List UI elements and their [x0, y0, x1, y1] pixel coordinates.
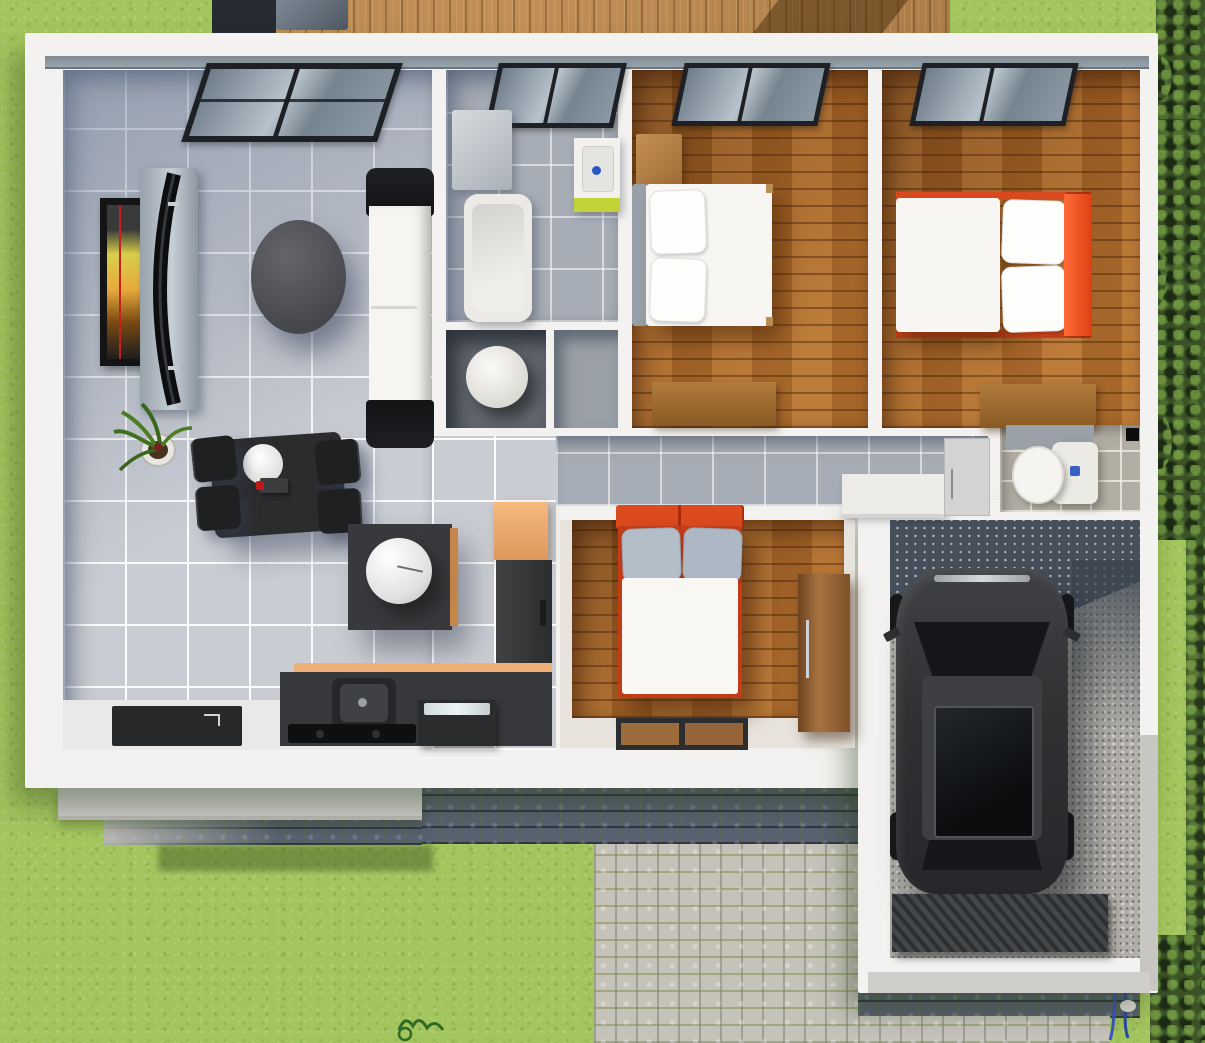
cooktop-burner-2	[372, 730, 380, 738]
bedroom1-nightstand	[636, 134, 682, 190]
picture-art-line	[119, 205, 121, 359]
water-heater-cylinder	[466, 346, 528, 408]
sofa-arm-bottom	[366, 400, 434, 448]
sofa-seat-seam	[371, 306, 417, 309]
deck-furniture-dark	[212, 0, 276, 36]
bedroom3-door-mat	[616, 718, 748, 750]
oven	[418, 700, 496, 746]
kitchen-sink	[332, 678, 396, 728]
oven-glass-top	[424, 703, 490, 715]
grass-sprig	[393, 1010, 457, 1043]
bedroom2-dresser	[980, 384, 1096, 428]
garage-right-wall-face	[1140, 735, 1158, 991]
bathroom-window-mullion	[543, 68, 559, 123]
sink-faucet	[358, 698, 367, 707]
dining-red-item	[256, 481, 264, 490]
pantry-cabinet	[494, 502, 548, 560]
cobble-strip-shadow	[420, 782, 882, 844]
garage-bottom-wall-face	[868, 972, 1150, 993]
bedroom2-headboard-orange	[1064, 192, 1092, 338]
garage-shadow-right	[1072, 560, 1140, 780]
house-shadow-on-grass	[158, 845, 433, 871]
car-rear-window	[922, 840, 1042, 870]
porch-step	[58, 786, 422, 820]
closet-floor	[554, 330, 618, 428]
garage-ramp	[892, 894, 1108, 952]
cooktop	[288, 724, 416, 743]
door-handle-mark	[204, 714, 220, 726]
car-roof	[922, 676, 1042, 840]
hedge-right-bottom	[1186, 540, 1205, 940]
bedroom3-pillow-1	[621, 527, 682, 583]
coffee-table	[251, 220, 346, 334]
hallway-counter	[842, 474, 944, 514]
potted-plant	[106, 398, 200, 484]
lamp-table-wood-edge	[450, 528, 458, 626]
dining-chair-3	[314, 438, 362, 486]
cooktop-burner-1	[316, 730, 324, 738]
bathtub-basin	[472, 204, 524, 312]
entrance-door-mat	[112, 706, 242, 746]
car-sunroof	[934, 706, 1034, 838]
dining-tray	[260, 478, 288, 493]
tv-curved-screen	[126, 166, 202, 412]
fridge	[496, 560, 552, 668]
car	[896, 568, 1068, 894]
bedroom1-footpost-1	[766, 184, 773, 193]
bedroom1-window-mullion	[737, 68, 752, 121]
deck-furniture-steel	[276, 0, 348, 30]
hallway-cabinet	[944, 438, 990, 516]
bedroom2-pillow-2	[1001, 265, 1067, 333]
bathroom-cabinet	[452, 110, 512, 190]
floor-plan-render	[0, 0, 1205, 1043]
bedroom2-window-mullion	[979, 68, 994, 121]
bedroom1-footpost-2	[766, 317, 773, 326]
dining-chair-2	[195, 485, 242, 532]
bedroom3-pillow-2	[682, 527, 743, 583]
bedroom1-dresser	[652, 382, 776, 426]
door-mat-panel-2	[685, 723, 743, 745]
toilet-button-blue	[1070, 466, 1080, 476]
bedroom3-duvet	[622, 578, 738, 694]
cobbles-below-garage	[858, 1016, 1110, 1043]
fridge-handle	[540, 600, 546, 626]
wardrobe-handle	[806, 620, 809, 678]
patio-door	[181, 63, 403, 142]
bedroom1-window	[671, 63, 830, 126]
bedroom2-pillow-1	[1001, 199, 1067, 265]
patio-door-mullion	[273, 69, 300, 136]
bedroom2-window	[909, 63, 1078, 126]
bedroom1-pillow-2	[649, 257, 707, 323]
wall-vent	[1126, 428, 1139, 441]
vanity-lime-side	[574, 198, 620, 212]
patio-door-rail	[200, 99, 385, 102]
car-front-chrome	[934, 575, 1030, 582]
door-mat-panel-1	[621, 723, 679, 745]
car-windshield	[914, 622, 1050, 678]
hedge-corner	[1150, 935, 1205, 1043]
bedroom2-duvet	[896, 198, 1000, 332]
vanity-faucet-blue	[592, 166, 601, 175]
vanity-sink	[574, 138, 620, 212]
bathtub	[464, 194, 532, 322]
bedroom1-pillow-1	[649, 189, 707, 255]
hallway-cabinet-handle	[951, 469, 953, 499]
toilet-bowl	[1012, 446, 1064, 504]
driveway-cobbles	[594, 844, 882, 1043]
dining-chair-1	[190, 435, 238, 483]
bedroom3-wardrobe	[798, 574, 850, 732]
